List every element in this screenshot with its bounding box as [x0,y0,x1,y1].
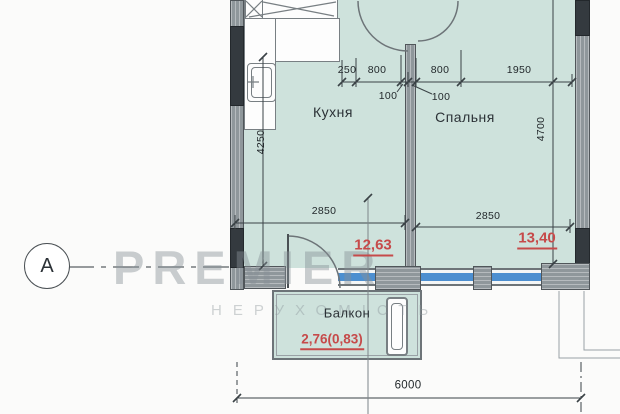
furniture-detail-lines [246,1,336,88]
kitchen-area-value: 12,63 [353,238,393,257]
kitchen-width-dimension [231,215,409,230]
dim-label-100-right: 100 [432,92,450,103]
bedroom-label: Спальня [435,110,495,124]
floor-plan: А PREMIER НЕРУХОМІСТЬ 250 800 100 100 80… [0,0,620,414]
balcony-label: Балкон [324,307,371,320]
dim-label-6000: 6000 [395,380,422,392]
adjacent-balcony-outline [559,291,620,358]
dim-label-100-left: 100 [379,91,397,102]
balcony-area-value: 2,76(0,83) [300,332,364,350]
dim-label-800-kitchen: 800 [368,65,386,76]
kitchen-height-dimension [259,53,267,270]
axis-marker-a: А [24,243,70,289]
dim-label-1950: 1950 [507,65,532,76]
dim-label-2850-bedroom: 2850 [476,211,501,222]
kitchen-label: Кухня [313,105,353,119]
watermark-brand: PREMIER [113,244,383,291]
dim-label-4250: 4250 [256,130,267,155]
axis-marker-label: А [40,255,53,278]
dim-label-4700: 4700 [536,117,547,142]
dim-label-250: 250 [338,65,356,76]
bedroom-area-value: 13,40 [517,231,557,250]
bedroom-height-dimension [549,0,557,268]
plan-linework [0,0,620,414]
kitchen-door-arc [358,1,408,51]
dim-label-800-bedroom: 800 [431,65,449,76]
bedroom-door-arc [418,1,458,41]
dim-label-2850-kitchen: 2850 [312,206,337,217]
